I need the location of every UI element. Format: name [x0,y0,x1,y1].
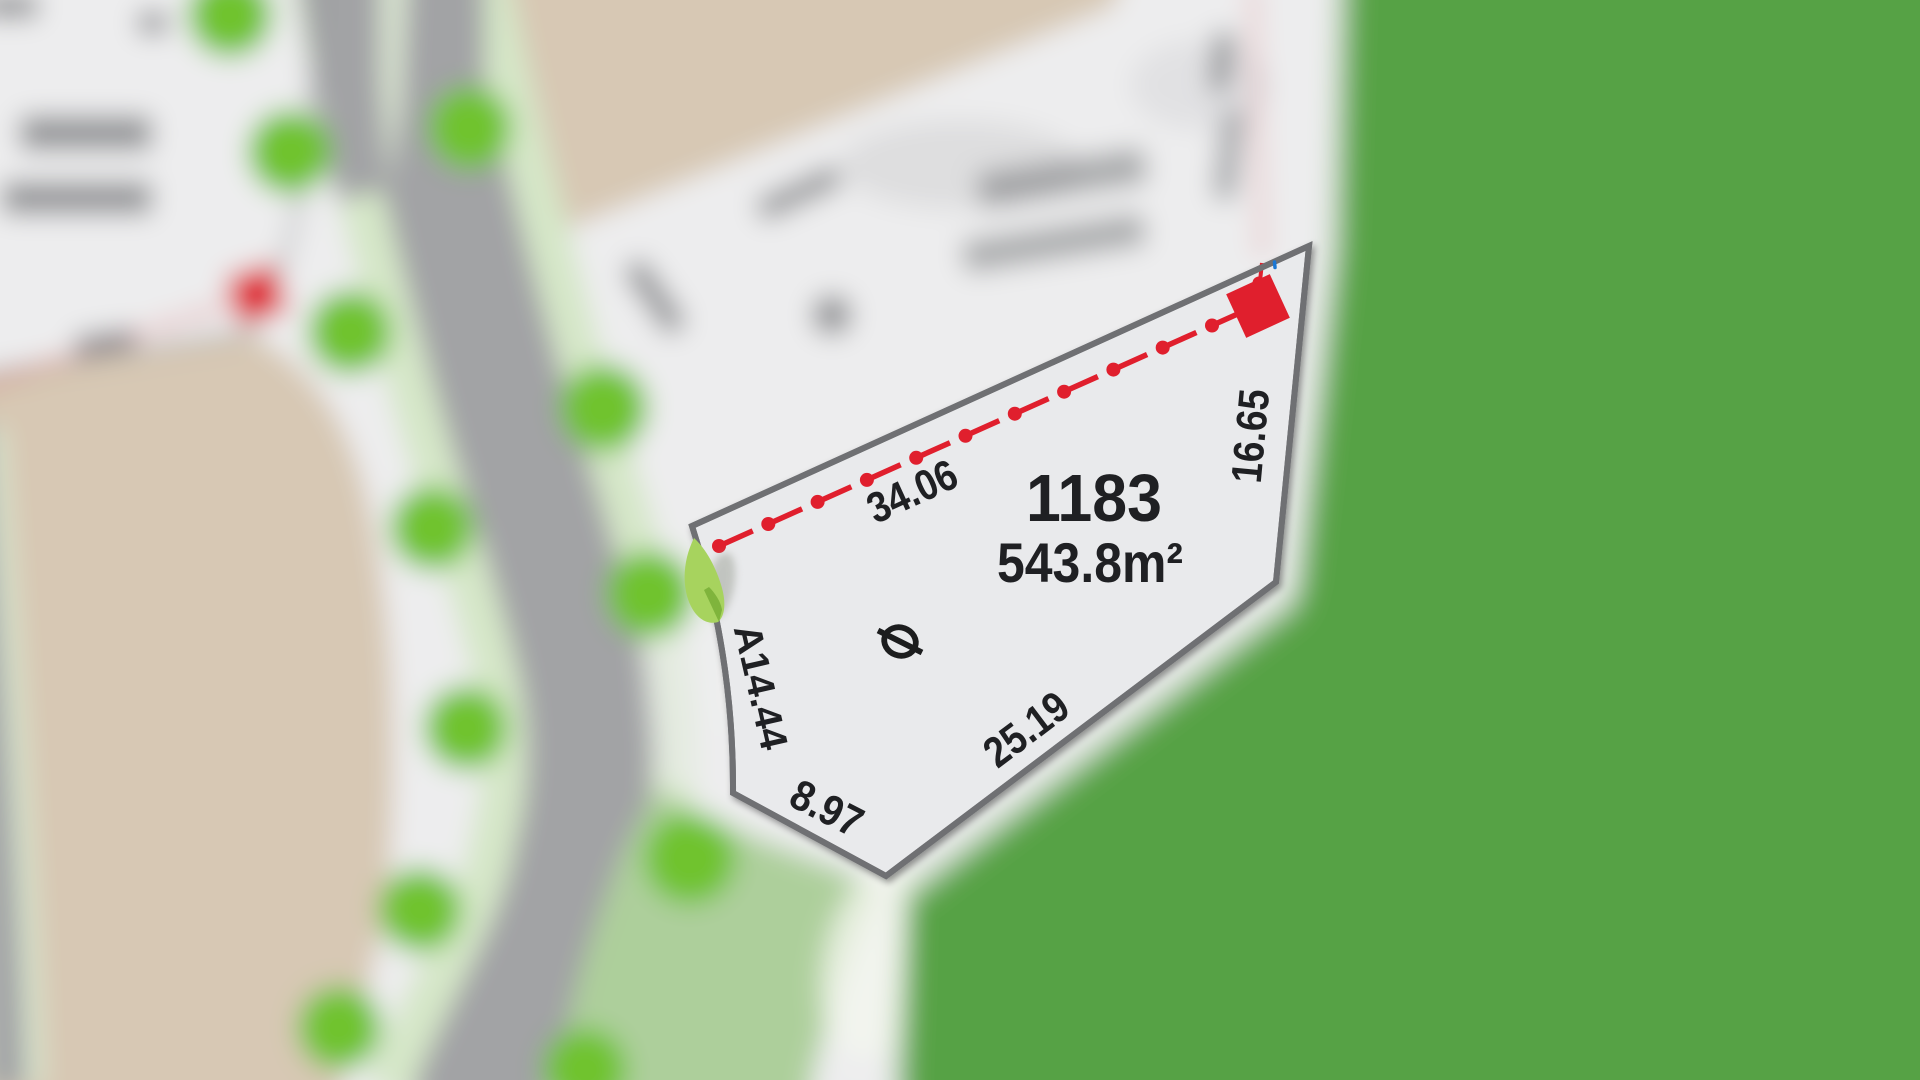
svg-text:543.8m²: 543.8m² [997,531,1183,594]
svg-text:16.65: 16.65 [1223,387,1279,485]
svg-text:1183: 1183 [1026,461,1162,536]
